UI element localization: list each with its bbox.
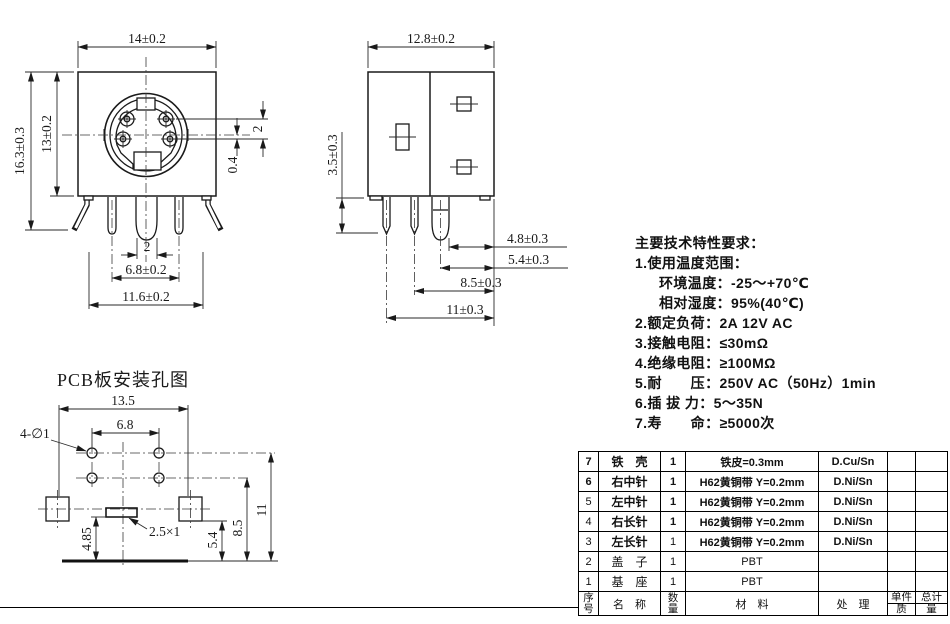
dim-front-height-outer: 16.3±0.3 [12,127,27,175]
dim-front-height-inner: 13±0.2 [39,115,54,153]
spec-line: 6.插 拔 力：5～35N [635,393,947,413]
table-row: 2 盖 子 1 PBT [579,552,948,572]
bom-unit-mass [888,492,916,512]
bom-no: 7 [579,452,599,472]
table-row: 3 左长针 1 H62黄铜带 Y=0.2mm D.Ni/Sn [579,532,948,552]
bom-no: 5 [579,492,599,512]
bom-total-mass [916,552,948,572]
spec-line: 2.额定负荷：2A 12V AC [635,313,947,333]
bom-no: 1 [579,572,599,592]
bom-no: 4 [579,512,599,532]
front-center-pin [136,197,157,240]
bom-unit-mass [888,532,916,552]
bom-unit-mass [888,472,916,492]
bom-treatment: D.Ni/Sn [819,492,888,512]
bom-total-mass [916,532,948,552]
bom-qty: 1 [661,532,686,552]
bom-treatment: D.Ni/Sn [819,472,888,492]
bom-total-mass [916,572,948,592]
bom-part-name: 左长针 [599,532,661,552]
front-bottom-opening [134,152,161,170]
label-pcb-slot: 2.5×1 [149,524,180,539]
bom-no: 2 [579,552,599,572]
bom-unit-mass [888,512,916,532]
bom-header-no: 序号 [579,592,599,616]
bom-table: 7 铁 壳 1 铁皮=0.3mm D.Cu/Sn 6 右中针 1 H62黄铜带 … [578,451,948,616]
spec-line: 7.寿 命：≥5000次 [635,413,947,433]
bom-treatment: D.Ni/Sn [819,532,888,552]
table-row: 5 左中针 1 H62黄铜带 Y=0.2mm D.Ni/Sn [579,492,948,512]
bom-no: 6 [579,472,599,492]
table-row: 1 基 座 1 PBT [579,572,948,592]
bom-no: 3 [579,532,599,552]
bom-header-total-mass: 总计量 [916,592,948,616]
pcb-hole-diagram: PCB板安装孔图 13.5 6.8 4-∅1 2.5×1 [0,350,300,624]
bom-total-mass [916,512,948,532]
bom-total-mass [916,472,948,492]
dim-side-leg-length: 3.5±0.3 [325,134,340,175]
bom-material: H62黄铜带 Y=0.2mm [686,472,819,492]
front-right-bent-leg [208,197,221,230]
bom-qty: 1 [661,512,686,532]
side-body [368,72,494,196]
spec-line: 环境温度：-25～+70℃ [635,273,947,293]
bom-part-name: 基 座 [599,572,661,592]
spec-line: 5.耐 压：250V AC（50Hz）1min [635,373,947,393]
bom-part-name: 左中针 [599,492,661,512]
dim-pcb-b: 5.4 [205,531,220,548]
bom-header-qty: 数量 [661,592,686,616]
bom-material: PBT [686,572,819,592]
table-row: 7 铁 壳 1 铁皮=0.3mm D.Cu/Sn [579,452,948,472]
front-tab-left [84,196,93,200]
bom-material: H62黄铜带 Y=0.2mm [686,512,819,532]
bom-qty: 1 [661,452,686,472]
bom-header-material: 材 料 [686,592,819,616]
dim-pcb-hole-pitch: 6.8 [117,417,134,432]
label-pcb-holes: 4-∅1 [20,426,50,441]
specs-title: 主要技术特性要求： [635,233,947,253]
table-row: 4 右长针 1 H62黄铜带 Y=0.2mm D.Ni/Sn [579,512,948,532]
table-row: 6 右中针 1 H62黄铜带 Y=0.2mm D.Ni/Sn [579,472,948,492]
dim-pcb-c: 8.5 [230,519,245,536]
side-tab-left [370,196,382,200]
bom-treatment [819,572,888,592]
dim-pcb-a: 4.85 [79,527,94,551]
dim-side-c: 8.5±0.3 [460,275,501,290]
bom-unit-mass [888,572,916,592]
bom-part-name: 右长针 [599,512,661,532]
bom-header-unit-mass: 单件质 [888,592,916,616]
dim-front-pin-axis-offset: 0.4 [225,156,240,173]
bom-treatment: D.Cu/Sn [819,452,888,472]
bom-qty: 1 [661,492,686,512]
side-tab-right [480,196,490,200]
dim-pcb-board-width: 13.5 [111,393,135,408]
dim-side-a: 4.8±0.3 [507,231,548,246]
bom-material: 铁皮=0.3mm [686,452,819,472]
dim-front-pin-row-pitch: 2 [250,126,265,133]
bom-qty: 1 [661,472,686,492]
front-view-drawing: 14±0.2 16.3±0.3 13±0.2 2 0.4 2 6.8±0.2 1… [0,0,320,335]
dim-front-width: 14±0.2 [128,31,166,46]
bom-header-treatment: 处 理 [819,592,888,616]
bom-total-mass [916,492,948,512]
dim-side-width: 12.8±0.2 [407,31,455,46]
front-body [78,72,216,196]
bom-part-name: 铁 壳 [599,452,661,472]
dim-side-d: 11±0.3 [446,302,484,317]
bom-part-name: 右中针 [599,472,661,492]
bom-unit-mass [888,552,916,572]
sheet-bottom-border [0,607,579,608]
bom-header-name: 名 称 [599,592,661,616]
pcb-title: PCB板安装孔图 [57,370,189,390]
side-view-drawing: 12.8±0.2 3.5±0.3 4.8±0.3 5.4±0.3 8.5±0.3… [300,0,640,340]
drawing-sheet: 14±0.2 16.3±0.3 13±0.2 2 0.4 2 6.8±0.2 1… [0,0,950,624]
dim-pcb-d: 11 [254,504,269,517]
spec-line: 3.接触电阻：≤30mΩ [635,333,947,353]
bom-material: PBT [686,552,819,572]
front-tab-right [202,196,211,200]
bom-material: H62黄铜带 Y=0.2mm [686,492,819,512]
bom-total-mass [916,452,948,472]
front-left-bent-leg [74,197,87,230]
dim-front-pin-pitch: 6.8±0.2 [125,262,166,277]
bom-qty: 1 [661,572,686,592]
bom-material: H62黄铜带 Y=0.2mm [686,532,819,552]
spec-line: 相对湿度：95%(40℃) [635,293,947,313]
dim-front-leg-pitch: 11.6±0.2 [122,289,169,304]
dim-front-center-pin: 2 [144,239,151,254]
dim-side-b: 5.4±0.3 [508,252,549,267]
spec-line: 4.绝缘电阻：≥100MΩ [635,353,947,373]
bom-treatment [819,552,888,572]
spec-line: 1.使用温度范围： [635,253,947,273]
bom-header-row: 序号 名 称 数量 材 料 处 理 单件质 总计量 [579,592,948,616]
bom-treatment: D.Ni/Sn [819,512,888,532]
technical-specs: 主要技术特性要求： 1.使用温度范围： 环境温度：-25～+70℃ 相对湿度：9… [635,233,947,433]
bom-unit-mass [888,452,916,472]
bom-qty: 1 [661,552,686,572]
bom-part-name: 盖 子 [599,552,661,572]
